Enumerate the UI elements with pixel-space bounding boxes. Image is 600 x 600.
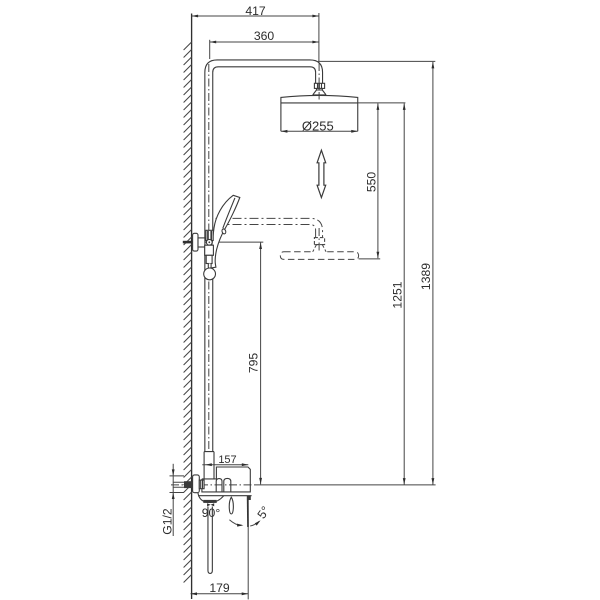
svg-text:90°: 90° (202, 506, 221, 520)
svg-text:550: 550 (364, 172, 378, 193)
svg-text:G1/2: G1/2 (161, 508, 175, 535)
svg-text:179: 179 (209, 581, 230, 595)
svg-text:360: 360 (254, 29, 275, 43)
svg-text:1251: 1251 (390, 281, 404, 308)
svg-text:795: 795 (246, 353, 260, 374)
svg-text:Ø255: Ø255 (302, 118, 334, 133)
svg-text:1389: 1389 (419, 263, 433, 290)
svg-text:157: 157 (218, 454, 236, 466)
svg-text:417: 417 (245, 4, 266, 18)
